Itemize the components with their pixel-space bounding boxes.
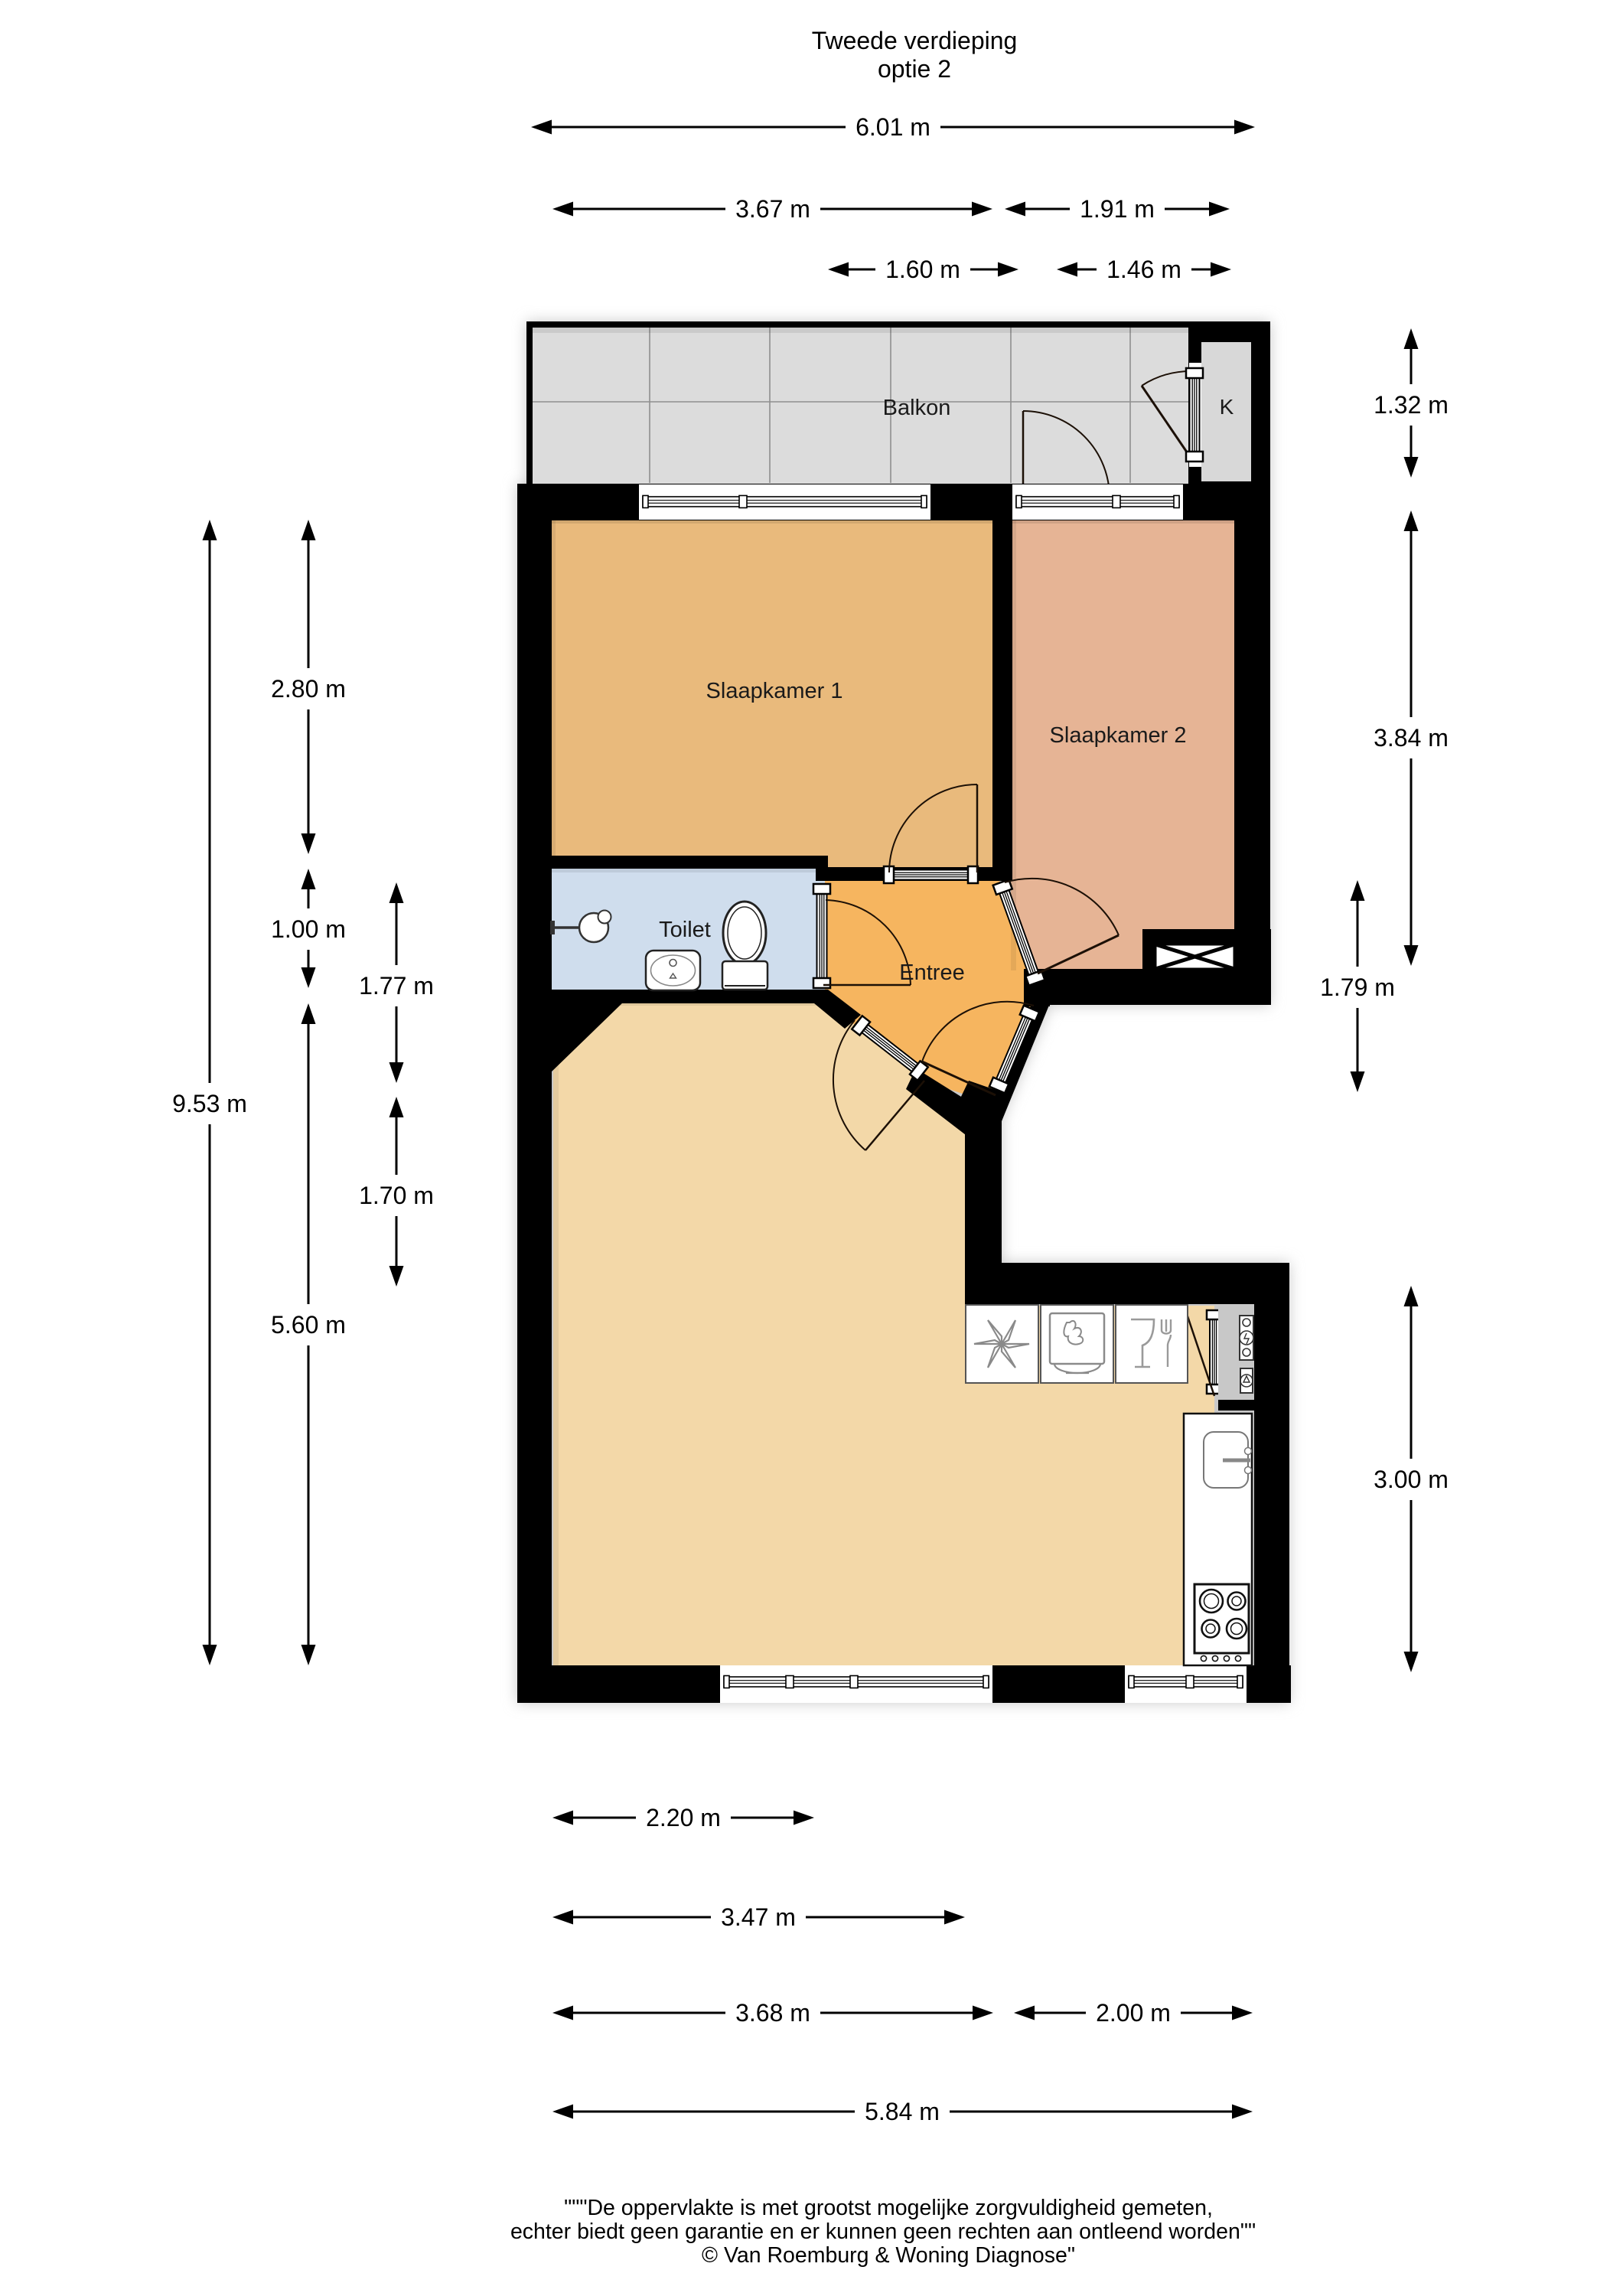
svg-text:Toilet: Toilet <box>659 918 711 942</box>
svg-text:1.32 m: 1.32 m <box>1374 391 1449 419</box>
svg-text:3.00 m: 3.00 m <box>1374 1466 1449 1493</box>
svg-text:1.46 m: 1.46 m <box>1106 256 1181 283</box>
svg-text:3.84 m: 3.84 m <box>1374 724 1449 752</box>
svg-text:2.80 m: 2.80 m <box>271 675 346 703</box>
svg-text:5.84 m: 5.84 m <box>865 2098 940 2125</box>
svg-text:9.53 m: 9.53 m <box>172 1090 247 1117</box>
svg-text:1.00 m: 1.00 m <box>271 915 346 943</box>
svg-text:1.60 m: 1.60 m <box>885 256 960 283</box>
svg-text:© Van Roemburg & Woning Diagno: © Van Roemburg & Woning Diagnose" <box>702 2243 1075 2268</box>
svg-text:1.91 m: 1.91 m <box>1080 195 1155 223</box>
svg-text:1.77 m: 1.77 m <box>359 972 434 1000</box>
svg-text:Entree: Entree <box>899 960 964 985</box>
svg-text:3.67 m: 3.67 m <box>735 195 810 223</box>
svg-text:Tweede verdieping: Tweede verdieping <box>812 27 1018 54</box>
svg-text:1.79 m: 1.79 m <box>1320 974 1395 1001</box>
svg-text:Balkon: Balkon <box>883 396 951 420</box>
svg-text:2.00 m: 2.00 m <box>1096 1999 1171 2027</box>
svg-text:"""De oppervlakte is met groot: """De oppervlakte is met grootst mogelij… <box>564 2196 1213 2220</box>
svg-text:echter biedt geen garantie en: echter biedt geen garantie en er kunnen … <box>510 2219 1256 2244</box>
svg-text:1.70 m: 1.70 m <box>359 1182 434 1209</box>
svg-text:2.20 m: 2.20 m <box>646 1804 721 1831</box>
svg-text:6.01 m: 6.01 m <box>855 113 930 141</box>
svg-text:optie 2: optie 2 <box>878 55 951 83</box>
svg-text:Slaapkamer 2: Slaapkamer 2 <box>1050 723 1187 748</box>
svg-text:3.68 m: 3.68 m <box>735 1999 810 2027</box>
svg-text:Slaapkamer 1: Slaapkamer 1 <box>706 679 843 703</box>
svg-text:3.47 m: 3.47 m <box>721 1903 796 1931</box>
svg-text:5.60 m: 5.60 m <box>271 1311 346 1339</box>
svg-text:K: K <box>1220 395 1234 419</box>
